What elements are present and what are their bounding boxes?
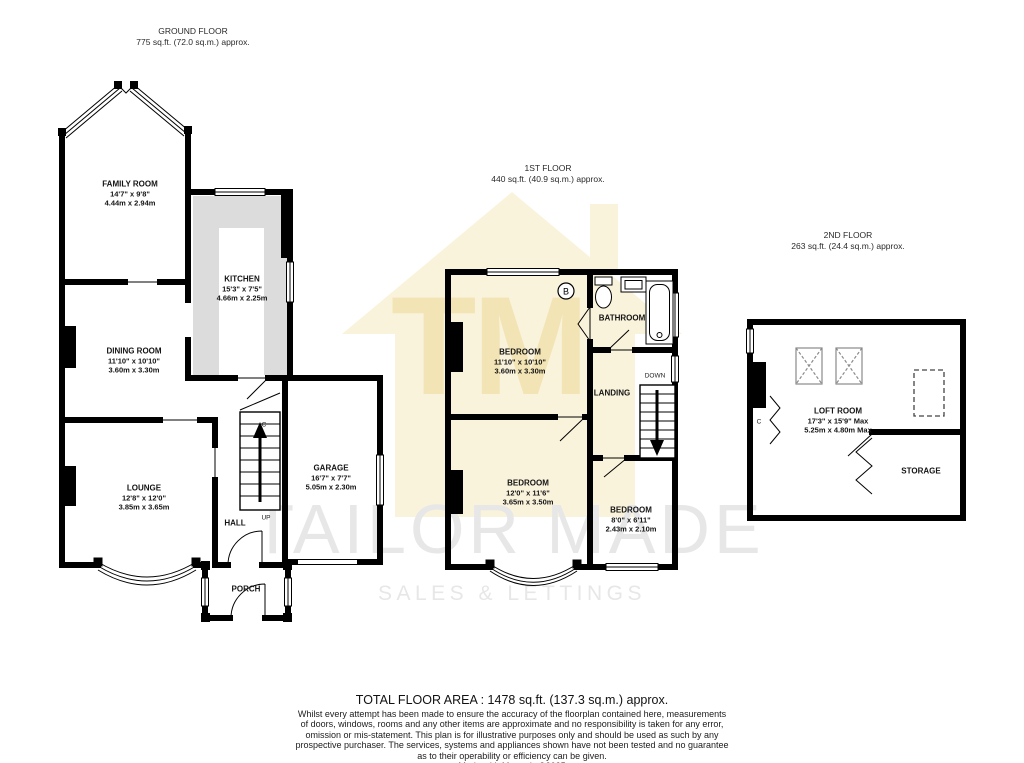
skylight-icon (796, 348, 822, 384)
floor-title: 1ST FLOOR (491, 163, 604, 174)
floorplan-page: TM TAILOR MADE SALES & LETTINGS (0, 0, 1024, 763)
floor-area: 775 sq.ft. (72.0 sq.m.) approx. (136, 37, 249, 48)
footer-disclaimer-block: Whilst every attempt has been made to en… (294, 709, 730, 763)
room-label-garage: GARAGE 16'7" x 7'7" 5.05m x 2.30m (306, 463, 357, 491)
skylight-icon (836, 348, 862, 384)
second-floor-windows (747, 329, 754, 353)
family-room-bay-window (62, 85, 188, 138)
room-label-dining-room: DINING ROOM 11'10" x 10'10" 3.60m x 3.30… (106, 346, 161, 374)
room-label-bedroom-3: BEDROOM 8'0" x 6'11" 2.43m x 2.10m (606, 505, 657, 533)
bathtub-icon (646, 281, 673, 344)
svg-text:B: B (563, 287, 569, 297)
second-floor-header: 2ND FLOOR 263 sq.ft. (24.4 sq.m.) approx… (791, 230, 904, 251)
room-label-bedroom-2: BEDROOM 12'0" x 11'6" 3.65m x 3.50m (503, 478, 554, 506)
toilet-icon (595, 277, 612, 308)
room-label-bedroom-1: BEDROOM 11'10" x 10'10" 3.60m x 3.30m (494, 347, 546, 375)
room-label-bathroom: BATHROOM (599, 313, 646, 323)
room-label-porch: PORCH (232, 584, 261, 594)
stairs-up-label: UP (261, 515, 270, 522)
ground-floor-stairs (240, 412, 280, 510)
room-label-kitchen: KITCHEN 15'3" x 7'5" 4.66m x 2.25m (217, 274, 268, 302)
first-floor-header: 1ST FLOOR 440 sq.ft. (40.9 sq.m.) approx… (491, 163, 604, 184)
room-label-hall: HALL (224, 518, 245, 528)
first-floor-stairs (640, 385, 675, 458)
room-label-family-room: FAMILY ROOM 14'7" x 9'8" 4.44m x 2.94m (102, 179, 158, 207)
stairs-down-label: DOWN (645, 373, 666, 380)
room-label-landing: LANDING (594, 388, 630, 398)
cupboard-label-ground: C (262, 422, 267, 429)
room-label-loft-room: LOFT ROOM 17'3" x 15'9" Max 5.25m x 4.80… (804, 406, 872, 434)
room-label-lounge: LOUNGE 12'8" x 12'0" 3.85m x 3.65m (119, 483, 170, 511)
sink-icon (621, 277, 646, 292)
room-label-storage: STORAGE (901, 466, 940, 476)
total-floor-area: TOTAL FLOOR AREA : 1478 sq.ft. (137.3 sq… (0, 693, 1024, 707)
watermark-brand-tagline: SALES & LETTINGS (378, 582, 646, 605)
disclaimer-text: Whilst every attempt has been made to en… (294, 709, 730, 761)
lounge-bay-window (94, 558, 200, 585)
cupboard-label-loft: C (757, 419, 762, 426)
floorplan-drawing: TM TAILOR MADE SALES & LETTINGS (0, 0, 1024, 763)
ground-floor-header: GROUND FLOOR 775 sq.ft. (72.0 sq.m.) app… (136, 26, 249, 47)
floor-title: 2ND FLOOR (791, 230, 904, 241)
floor-title: GROUND FLOOR (136, 26, 249, 37)
floor-area: 263 sq.ft. (24.4 sq.m.) approx. (791, 241, 904, 252)
second-floor-chimney-breast (750, 362, 766, 408)
boiler-icon: B (558, 283, 574, 299)
floor-area: 440 sq.ft. (40.9 sq.m.) approx. (491, 174, 604, 185)
dashed-outline (914, 370, 944, 416)
watermark-initials: TM (391, 267, 585, 424)
